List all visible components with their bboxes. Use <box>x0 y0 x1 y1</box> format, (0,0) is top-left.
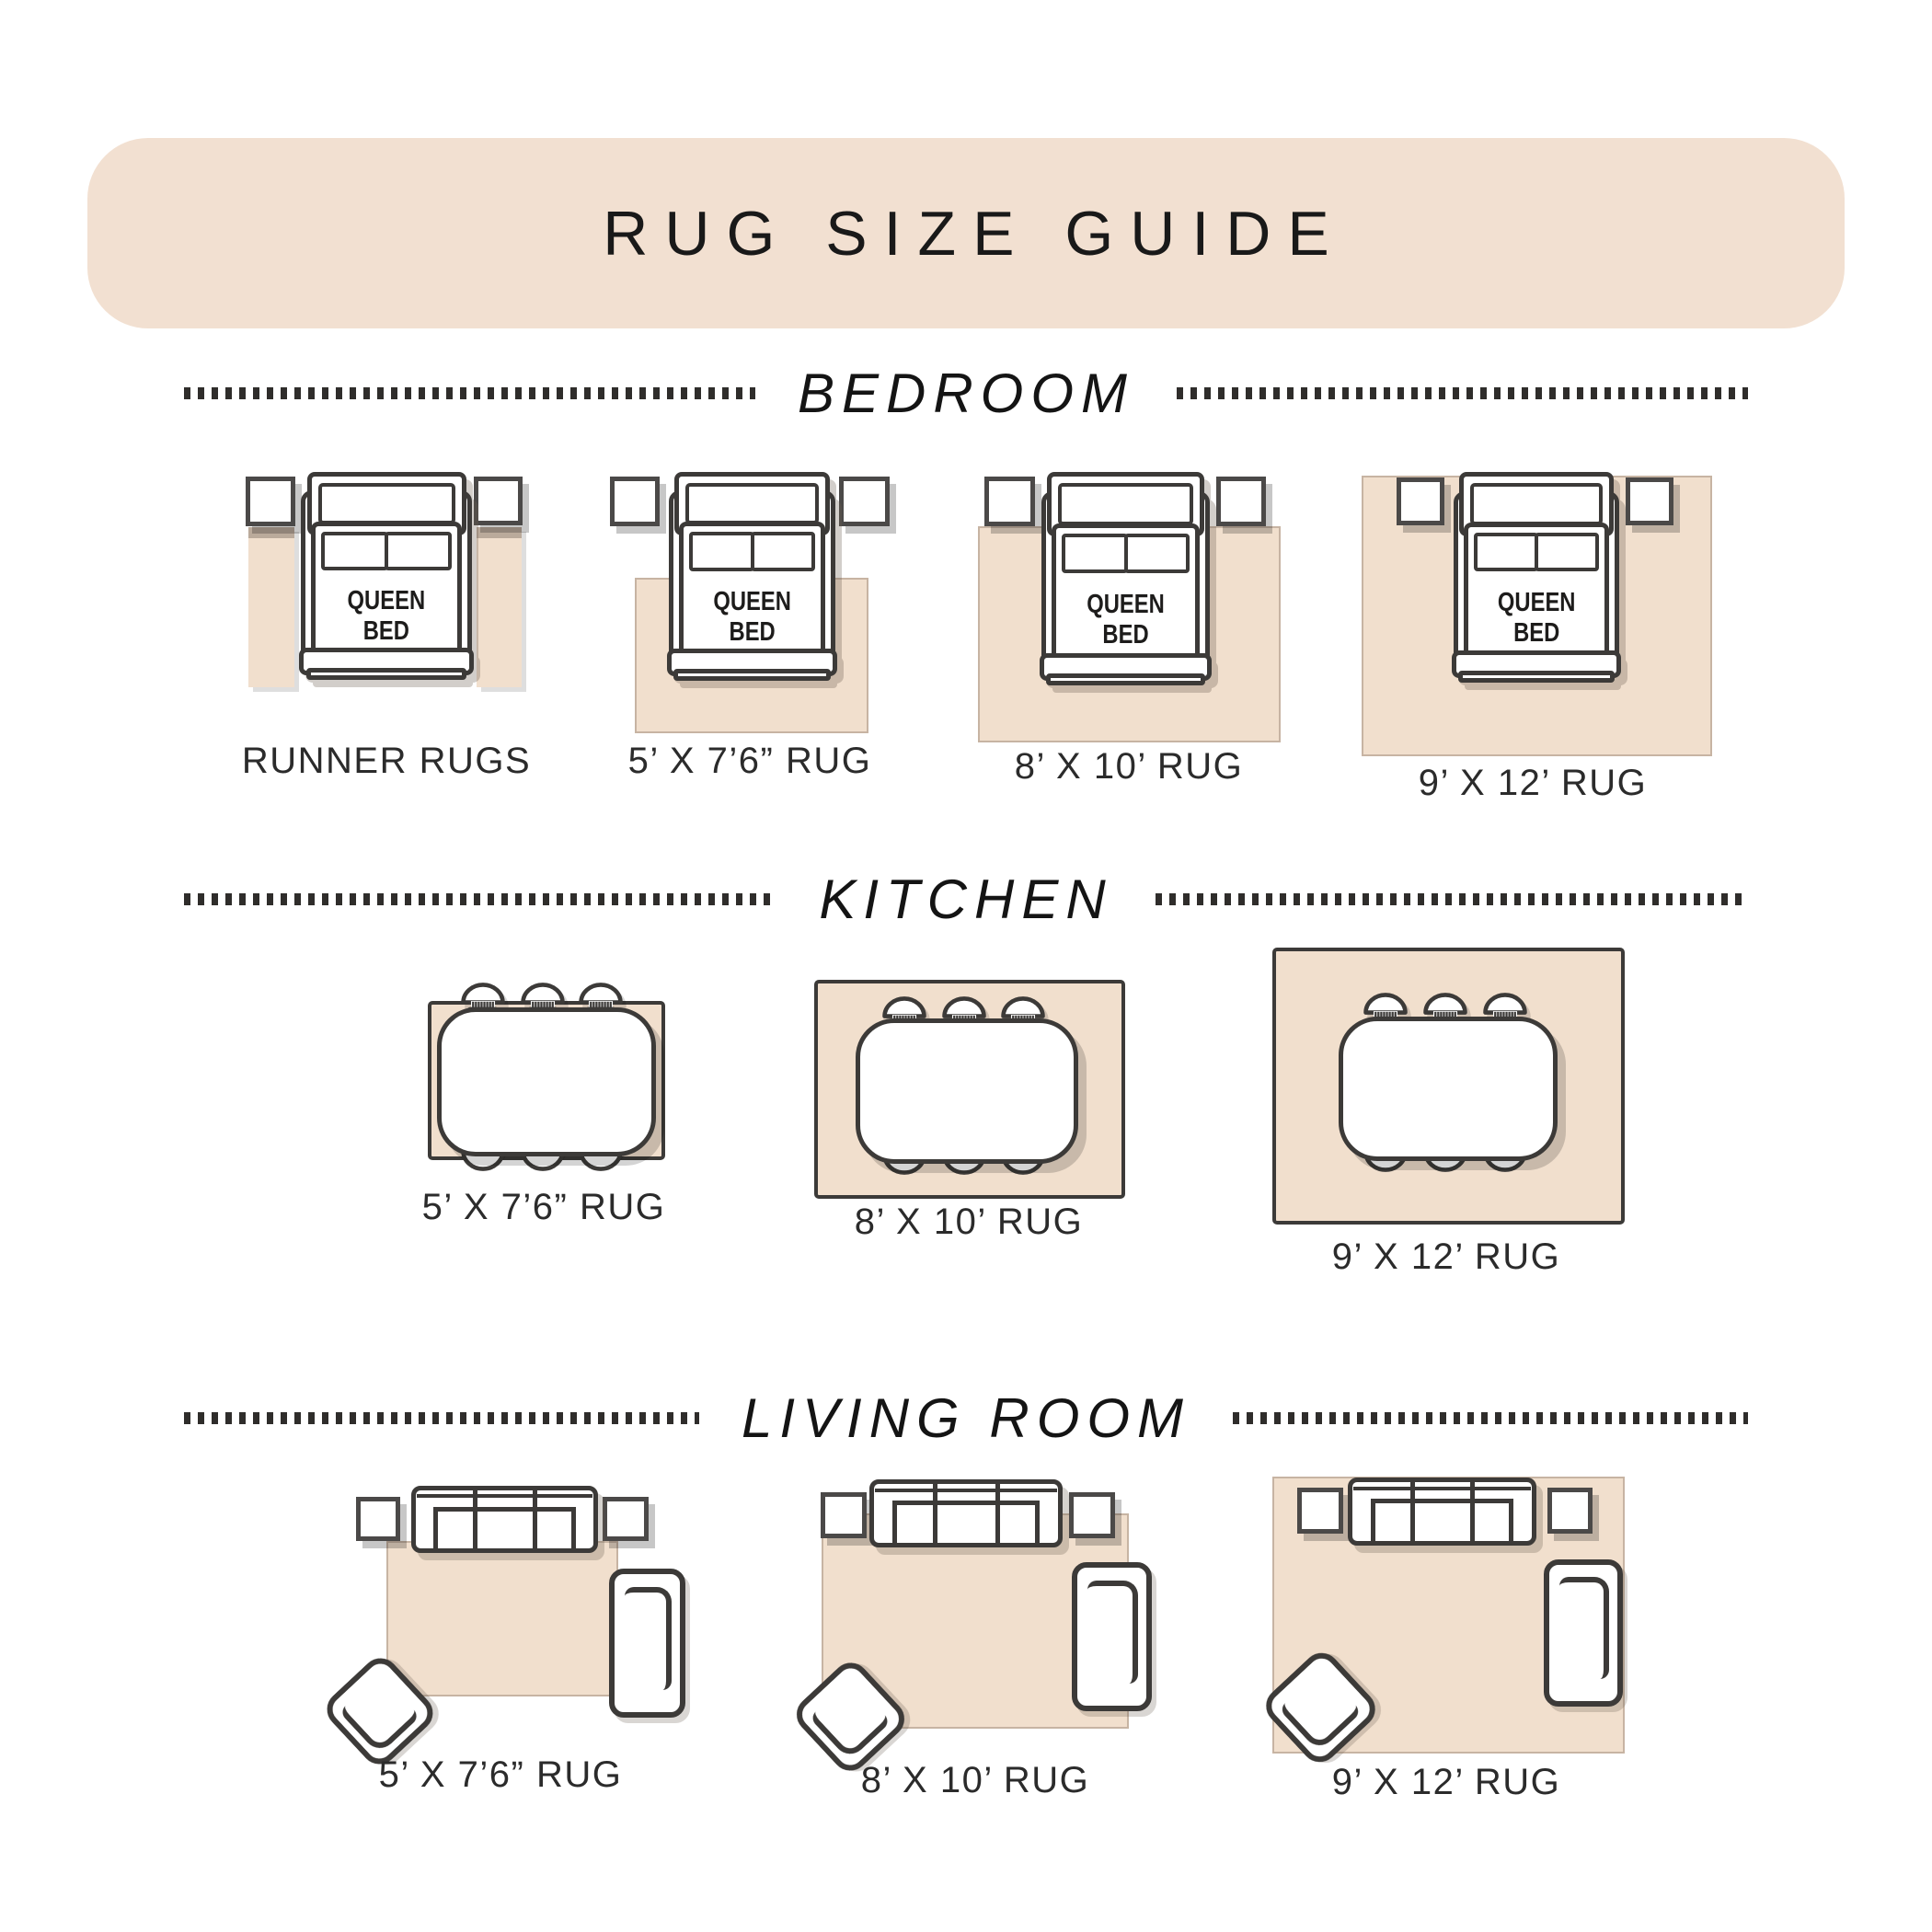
bedroom-diagram-9x12-rug: QUEEN BED 9’ X 12’ RUG <box>1352 465 1711 814</box>
sofa-cushion-divider <box>995 1479 1000 1547</box>
chaise-backrest <box>625 1587 673 1691</box>
pillow <box>1062 534 1128 573</box>
dining-table <box>437 1007 656 1156</box>
nightstand-right <box>839 477 890 526</box>
rug-size-label: 5’ X 7’6” RUG <box>628 741 872 782</box>
rug-size-label: 8’ X 10’ RUG <box>861 1760 1089 1801</box>
armchair-chaise <box>609 1569 685 1718</box>
sofa-arm-right <box>1509 1499 1513 1546</box>
bed-label: QUEEN BED <box>328 586 444 647</box>
rug-size-label: 9’ X 12’ RUG <box>1332 1236 1560 1278</box>
dotted-divider <box>1177 387 1748 399</box>
section-title: LIVING ROOM <box>742 1386 1190 1450</box>
bed-footrail <box>673 669 830 681</box>
nightstand-left <box>984 477 1035 526</box>
kitchen-diagram-5x76-rug: 5’ X 7’6” RUG <box>386 957 718 1270</box>
bed-label: QUEEN BED <box>696 587 808 648</box>
pillow <box>1124 534 1190 573</box>
sofa-back-roll <box>875 1489 1056 1492</box>
sofa-cushion-divider <box>533 1486 537 1553</box>
sofa-cushion-divider <box>1410 1478 1415 1546</box>
dining-table <box>1339 1017 1558 1161</box>
chaise-backrest <box>1087 1581 1138 1685</box>
bed-footrail <box>1458 671 1614 683</box>
sofa-cushion-divider <box>1470 1478 1475 1546</box>
bed-footrail <box>306 668 467 680</box>
queen-bed: QUEEN BED <box>669 472 835 681</box>
bedroom-diagram-5x76-rug: QUEEN BED 5’ X 7’6” RUG <box>607 465 892 814</box>
bed-label: QUEEN BED <box>1069 590 1183 650</box>
dotted-divider <box>1156 893 1748 905</box>
bed-mattress: QUEEN BED <box>1464 523 1609 663</box>
sofa-back-roll <box>1353 1487 1531 1490</box>
bedroom-diagram-runner-rugs: QUEEN BED RUNNER RUGS <box>244 465 529 814</box>
bed-mattress: QUEEN BED <box>679 522 825 661</box>
rug-size-label: 5’ X 7’6” RUG <box>422 1187 666 1228</box>
sofa-cushion-divider <box>933 1479 937 1547</box>
pillow <box>1474 533 1538 571</box>
nightstand-left <box>1397 477 1444 525</box>
section-title: BEDROOM <box>798 362 1134 425</box>
sofa <box>869 1479 1063 1547</box>
dotted-divider <box>184 387 755 399</box>
page-title: RUG SIZE GUIDE <box>586 198 1345 270</box>
sofa-back-roll <box>417 1494 592 1498</box>
dotted-divider <box>184 1412 699 1424</box>
side-table-right <box>603 1497 649 1541</box>
living-room-diagram-9x12-rug: 9’ X 12’ RUG <box>1260 1472 1647 1822</box>
dotted-divider <box>184 893 776 905</box>
sofa-arm-left <box>892 1501 897 1547</box>
sofa-back-edge <box>1371 1499 1514 1503</box>
sofa-cushion-divider <box>473 1486 477 1553</box>
side-table-right <box>1547 1488 1593 1534</box>
rug-size-guide-infographic: RUG SIZE GUIDE BEDROOM QUEEN BED RUNNER … <box>0 0 1932 1932</box>
queen-bed: QUEEN BED <box>1454 472 1619 683</box>
kitchen-diagram-9x12-rug: 9’ X 12’ RUG <box>1270 938 1628 1288</box>
pillow <box>751 532 816 570</box>
nightstand-left <box>610 477 660 526</box>
rug-size-label: 9’ X 12’ RUG <box>1419 763 1647 804</box>
sofa-arm-right <box>1035 1501 1040 1547</box>
bed-label: QUEEN BED <box>1480 588 1593 649</box>
chaise-backrest <box>1559 1577 1609 1679</box>
queen-bed: QUEEN BED <box>1041 472 1210 685</box>
nightstand-left <box>246 477 295 526</box>
rug-size-label: 8’ X 10’ RUG <box>1015 746 1243 788</box>
dining-table <box>856 1018 1078 1164</box>
runner-rug-right <box>477 527 522 687</box>
sofa <box>1348 1478 1536 1546</box>
nightstand-right <box>1216 477 1266 526</box>
rug-5x76 <box>386 1541 618 1696</box>
section-heading-bedroom: BEDROOM <box>184 361 1748 425</box>
queen-bed: QUEEN BED <box>301 472 472 680</box>
accent-chair-backrest <box>810 1679 891 1761</box>
living-room-diagram-8x10-rug: 8’ X 10’ RUG <box>791 1472 1187 1822</box>
pillow <box>689 532 754 570</box>
sofa-arm-right <box>571 1507 576 1553</box>
pillow <box>385 532 452 570</box>
accent-chair-backrest <box>1279 1669 1362 1752</box>
sofa-arm-left <box>1371 1499 1375 1546</box>
runner-rug-left <box>248 527 294 687</box>
sofa <box>411 1486 598 1553</box>
sofa-back-edge <box>433 1507 575 1512</box>
bed-footrail <box>1046 673 1204 685</box>
nightstand-right <box>474 477 523 525</box>
accent-chair-backrest <box>339 1673 420 1754</box>
bedroom-diagram-8x10-rug: QUEEN BED 8’ X 10’ RUG <box>975 465 1279 814</box>
living-room-diagram-5x76-rug: 5’ X 7’6” RUG <box>276 1472 690 1822</box>
side-table-left <box>821 1492 867 1538</box>
side-table-right <box>1069 1492 1115 1538</box>
bed-mattress: QUEEN BED <box>311 522 462 661</box>
sofa-back-edge <box>892 1501 1040 1505</box>
header-band: RUG SIZE GUIDE <box>87 138 1845 328</box>
armchair-chaise <box>1544 1559 1623 1707</box>
armchair-chaise <box>1072 1562 1152 1711</box>
rug-size-label: 9’ X 12’ RUG <box>1332 1762 1560 1803</box>
rug-size-label: 8’ X 10’ RUG <box>855 1202 1083 1243</box>
dotted-divider <box>1233 1412 1748 1424</box>
section-heading-kitchen: KITCHEN <box>184 867 1748 931</box>
rug-size-label: RUNNER RUGS <box>242 741 531 782</box>
pillow <box>321 532 388 570</box>
section-heading-living-room: LIVING ROOM <box>184 1386 1748 1450</box>
bed-mattress: QUEEN BED <box>1052 523 1200 666</box>
pillow <box>1535 533 1599 571</box>
side-table-left <box>356 1497 400 1541</box>
rug-size-label: 5’ X 7’6” RUG <box>379 1754 623 1796</box>
section-title: KITCHEN <box>819 868 1112 931</box>
kitchen-diagram-8x10-rug: 8’ X 10’ RUG <box>791 957 1178 1279</box>
side-table-left <box>1297 1488 1343 1534</box>
sofa-arm-left <box>433 1507 438 1553</box>
nightstand-right <box>1626 477 1673 525</box>
